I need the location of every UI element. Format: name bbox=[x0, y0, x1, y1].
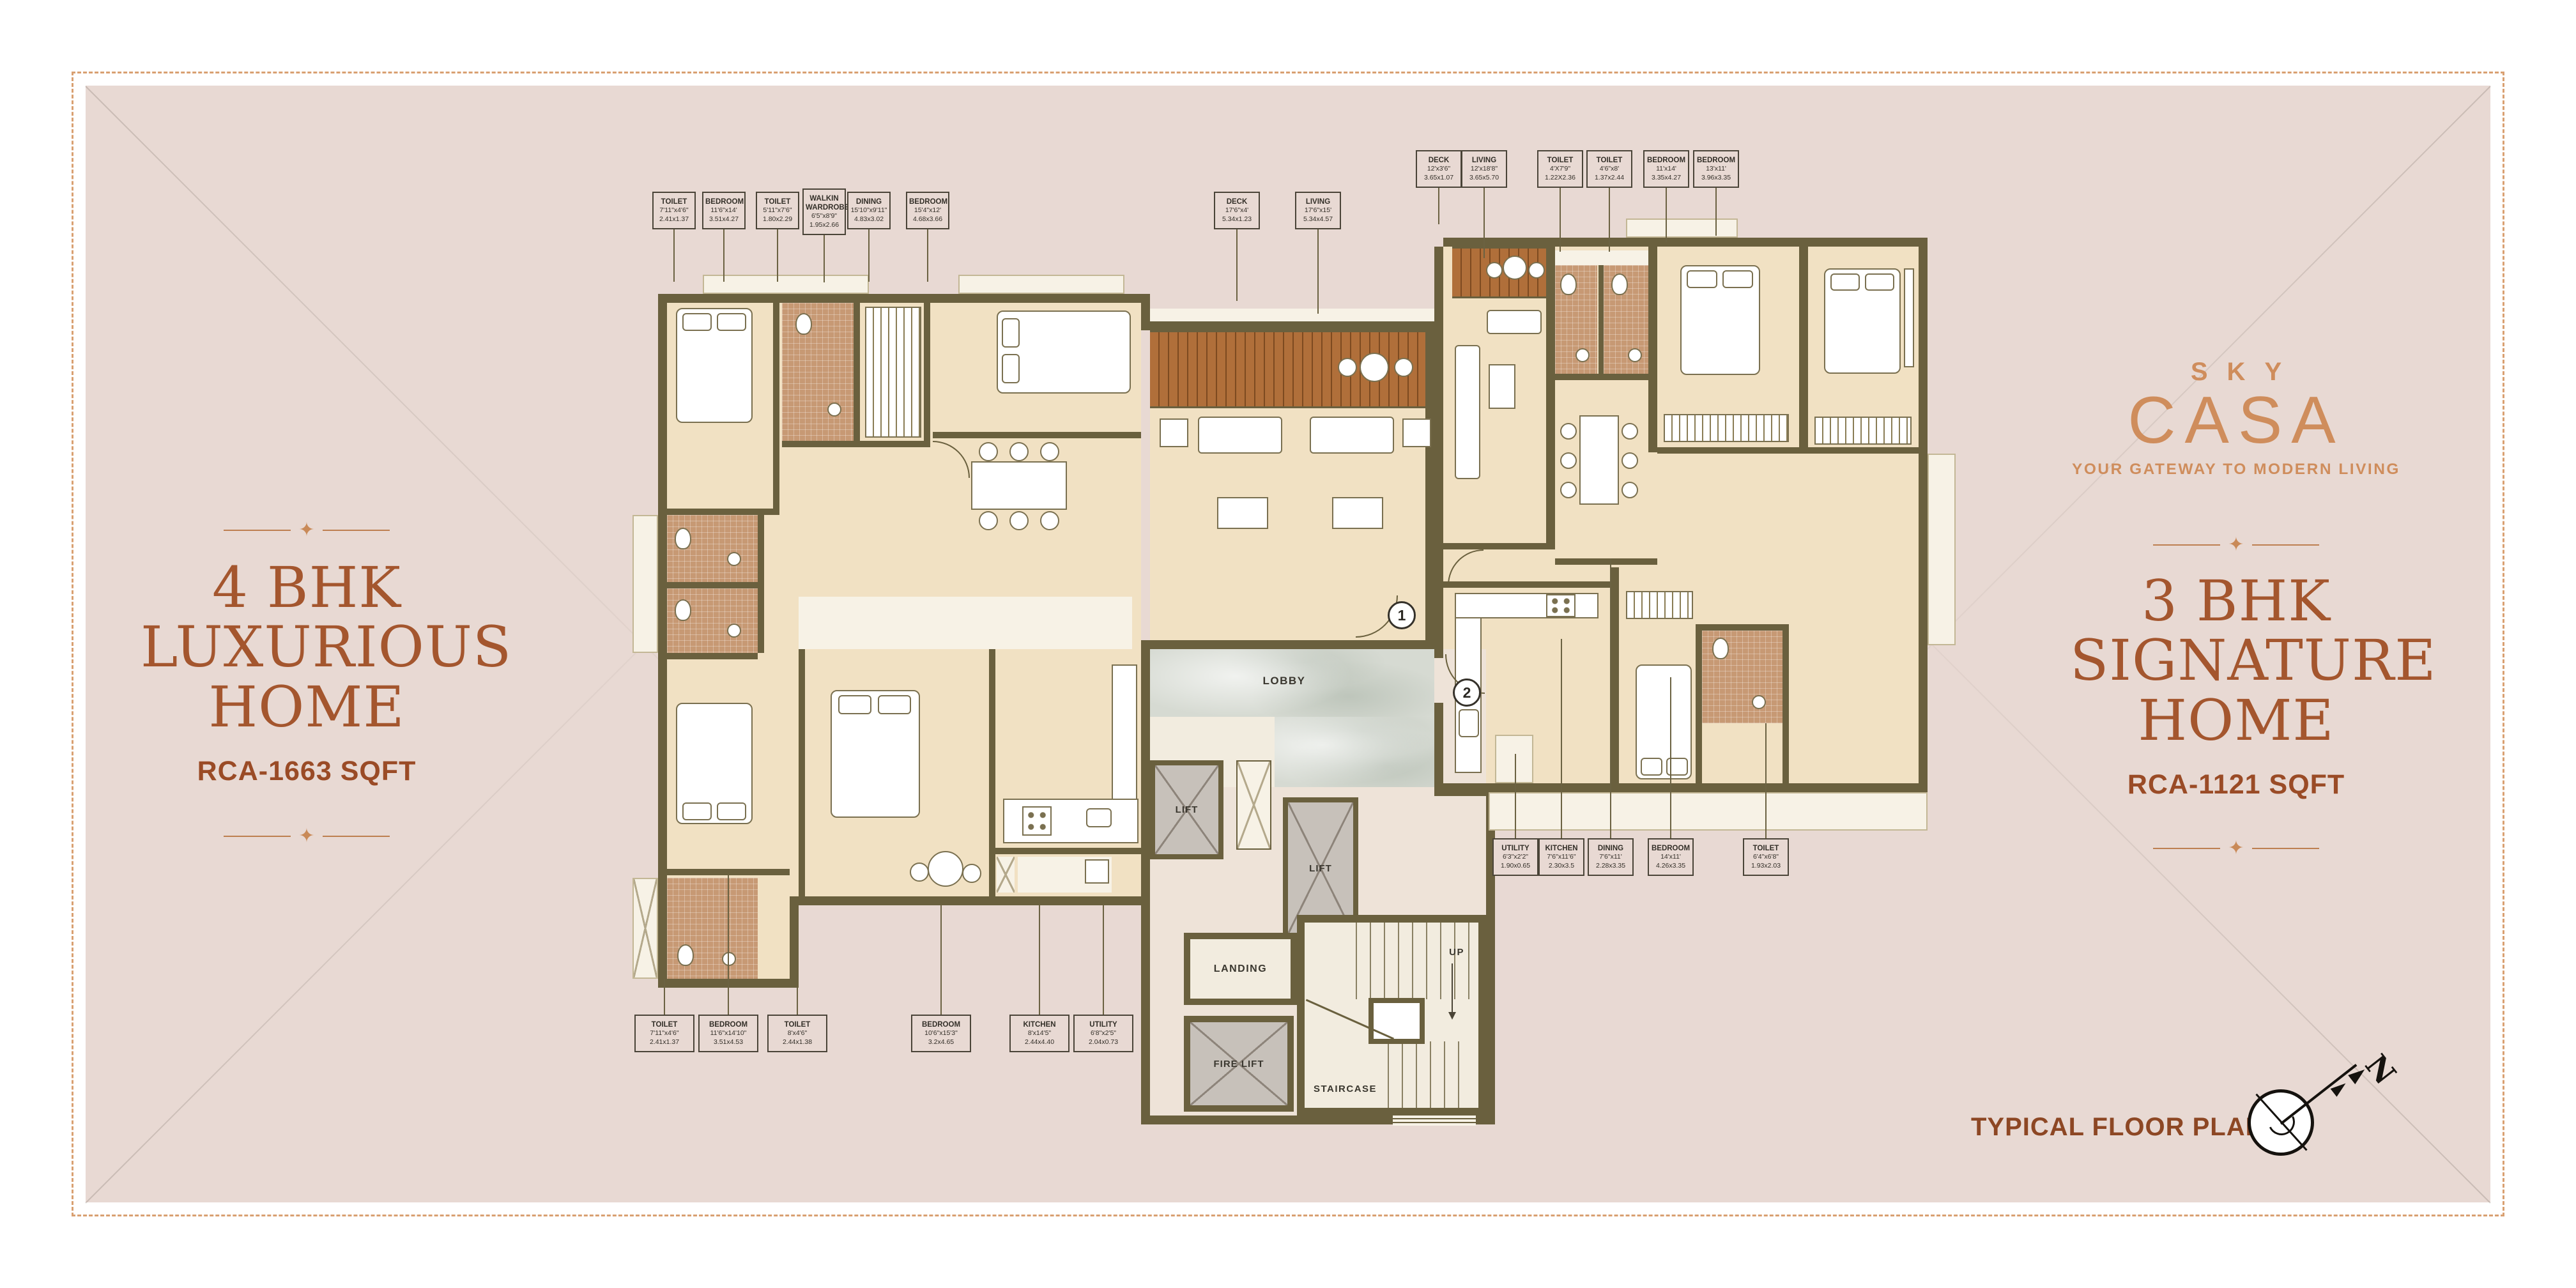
room-callout: BEDROOM11'6"x14'10"3.51x4.53 bbox=[698, 875, 758, 1052]
wall bbox=[924, 303, 930, 447]
right-unit-area: RCA-1121 SQFT bbox=[2070, 769, 2402, 801]
toilet-wc bbox=[1611, 273, 1628, 295]
divider-star-icon: ✦ bbox=[2228, 535, 2244, 555]
sofa bbox=[1455, 345, 1480, 479]
left-unit-title-block: ✦ 4 BHK LUXURIOUS HOME RCA-1663 SQFT ✦ bbox=[141, 521, 473, 846]
left-unit-area: RCA-1663 SQFT bbox=[141, 756, 473, 787]
wall bbox=[1555, 374, 1657, 380]
room-callout: UTILITY6'8"x2'5"2.04x0.73 bbox=[1073, 905, 1133, 1052]
divider-ornament: ✦ bbox=[141, 521, 473, 540]
duct bbox=[997, 857, 1015, 893]
staircase-room: UP STAIRCASE bbox=[1297, 915, 1486, 1115]
wall bbox=[1696, 624, 1789, 631]
side-ledge bbox=[632, 878, 658, 979]
walkin-wardrobe bbox=[865, 307, 921, 438]
wall bbox=[1657, 447, 1928, 454]
washing-machine bbox=[1085, 859, 1109, 884]
right-unit-title-block: ✦ 3 BHK SIGNATURE HOME RCA-1121 SQFT ✦ bbox=[2070, 535, 2402, 858]
sofa bbox=[1198, 417, 1282, 454]
kitchen-sink bbox=[1086, 808, 1112, 827]
wall bbox=[1141, 303, 1150, 330]
room-callout: LIVING17'6"x15'5.34x4.57 bbox=[1295, 192, 1341, 314]
left-unit-title-line1: 4 BHK bbox=[141, 558, 473, 617]
side-ledge bbox=[632, 515, 658, 653]
landing-room: LANDING bbox=[1184, 933, 1297, 1005]
right-unit-title-line2: SIGNATURE bbox=[2070, 631, 2402, 690]
bed bbox=[1680, 265, 1760, 375]
room-callout: BEDROOM13'x11'3.96x3.35 bbox=[1693, 150, 1739, 236]
wall bbox=[933, 432, 1141, 438]
plan-type-label: TYPICAL FLOOR PLAN bbox=[1971, 1113, 2264, 1142]
wall bbox=[989, 649, 995, 896]
room-callout: TOILET6'4"x6'8"1.93x2.03 bbox=[1743, 723, 1789, 876]
divider-ornament: ✦ bbox=[2070, 839, 2402, 858]
wall bbox=[1598, 265, 1604, 374]
wall bbox=[1648, 247, 1657, 452]
wall bbox=[667, 653, 758, 659]
dining-table bbox=[1579, 415, 1619, 505]
room-callout: TOILET4'6"x8'1.37x2.44 bbox=[1586, 150, 1632, 252]
toilet-room bbox=[782, 303, 854, 441]
lobby-floor bbox=[1275, 717, 1434, 787]
left-unit-title-line2: LUXURIOUS bbox=[141, 617, 473, 677]
wall bbox=[1141, 640, 1443, 649]
room-callout: DECK17'6"x4'5.34x1.23 bbox=[1214, 192, 1260, 301]
left-unit-corridor bbox=[799, 597, 1132, 649]
stair-well bbox=[1368, 998, 1425, 1044]
room-callout: DINING7'6"x11'2.28x3.35 bbox=[1588, 558, 1634, 876]
wall bbox=[1141, 649, 1150, 1124]
dresser bbox=[1904, 268, 1914, 367]
side-ledge bbox=[1928, 454, 1956, 645]
fire-lift-shaft: FIRE LIFT bbox=[1184, 1016, 1294, 1112]
toilet-basin bbox=[1575, 348, 1590, 362]
toilet-basin bbox=[727, 624, 741, 638]
coffee-table bbox=[1217, 497, 1268, 529]
room-callout: BEDROOM11'x14'3.35x4.27 bbox=[1643, 150, 1689, 242]
wall bbox=[1434, 247, 1443, 658]
bed bbox=[676, 308, 753, 423]
sofa bbox=[1310, 417, 1394, 454]
stove bbox=[1546, 594, 1575, 617]
wall bbox=[667, 509, 779, 515]
kitchen-counter bbox=[1455, 593, 1598, 618]
coffee-table bbox=[1332, 497, 1383, 529]
room-callout: TOILET4'X7'9"1.22X2.36 bbox=[1537, 150, 1583, 252]
deck-table bbox=[1360, 353, 1389, 382]
bed bbox=[676, 703, 753, 824]
room-callout: KITCHEN8'x14'5"2.44x4.40 bbox=[1009, 905, 1069, 1052]
wall bbox=[1425, 330, 1434, 649]
wardrobe bbox=[1814, 417, 1912, 445]
deck-ledge bbox=[1150, 309, 1434, 321]
side-table bbox=[1402, 418, 1431, 447]
compass-icon: N bbox=[2236, 1064, 2402, 1192]
wall bbox=[1919, 238, 1928, 792]
brochure-page: ✦ 4 BHK LUXURIOUS HOME RCA-1663 SQFT ✦ S… bbox=[0, 0, 2576, 1288]
wall bbox=[1434, 703, 1443, 792]
brand-casa: CASA bbox=[2070, 387, 2402, 454]
dining-table bbox=[971, 461, 1067, 510]
room-callout: WALKIN WARDROBE6'5"x8'9"1.95x2.66 bbox=[802, 188, 846, 282]
toilet-wc bbox=[795, 313, 812, 335]
wall bbox=[790, 896, 799, 988]
wall bbox=[1150, 321, 1443, 330]
wall bbox=[799, 649, 805, 896]
room-callout: BEDROOM15'4"x12'4.68x3.66 bbox=[906, 192, 949, 282]
toilet-basin bbox=[1628, 348, 1642, 362]
room-callout: UTILITY6'3"x2'2"1.90x0.65 bbox=[1492, 754, 1538, 876]
wall bbox=[773, 303, 779, 511]
toilet-wc bbox=[675, 528, 691, 549]
divider-star-icon: ✦ bbox=[298, 521, 314, 540]
fire-lift-label: FIRE LIFT bbox=[1214, 1059, 1264, 1069]
unit-2-marker: 2 bbox=[1453, 678, 1481, 707]
room-callout: BEDROOM11'6"x14'3.51x4.27 bbox=[702, 192, 746, 282]
duct bbox=[1236, 760, 1271, 850]
bed bbox=[1824, 268, 1901, 374]
room-callout: TOILET5'11"x7'6"1.80x2.29 bbox=[756, 192, 799, 282]
deck-table bbox=[1503, 256, 1527, 280]
lift-label: LIFT bbox=[1176, 804, 1199, 815]
wardrobe bbox=[1626, 591, 1693, 619]
room-callout: TOILET7'11"x4'6"2.41x1.37 bbox=[634, 979, 694, 1052]
sofa bbox=[1487, 310, 1542, 334]
coffee-table bbox=[1489, 364, 1515, 409]
right-unit-title-line1: 3 BHK bbox=[2070, 571, 2402, 631]
wall bbox=[658, 294, 667, 988]
brand-tagline: YOUR GATEWAY TO MODERN LIVING bbox=[2070, 461, 2402, 479]
toilet-wc bbox=[675, 599, 691, 621]
wall bbox=[667, 869, 790, 875]
lobby-label: LOBBY bbox=[1263, 675, 1306, 687]
room-callout: BEDROOM14'x11'4.26x3.35 bbox=[1648, 677, 1694, 876]
left-unit-title-line3: HOME bbox=[141, 677, 473, 737]
divider-star-icon: ✦ bbox=[298, 827, 314, 846]
divider-ornament: ✦ bbox=[141, 827, 473, 846]
unit-1-marker: 1 bbox=[1388, 601, 1416, 629]
toilet-basin bbox=[727, 552, 741, 566]
right-unit-title-line3: HOME bbox=[2070, 691, 2402, 750]
room-callout: KITCHEN7'6"x11'6"2.30x3.5 bbox=[1538, 639, 1584, 876]
wall bbox=[758, 515, 764, 653]
side-table bbox=[1160, 418, 1188, 447]
divider-star-icon: ✦ bbox=[2228, 839, 2244, 858]
room-callout: LIVING12'x18'8"3.65x5.70 bbox=[1461, 150, 1507, 258]
top-ledge bbox=[958, 275, 1124, 294]
wall bbox=[667, 582, 758, 588]
divider-ornament: ✦ bbox=[2070, 535, 2402, 555]
toilet-wc bbox=[1560, 273, 1577, 295]
landing-label: LANDING bbox=[1214, 963, 1267, 975]
right-duct-strip bbox=[1555, 250, 1657, 265]
lift-shaft: LIFT bbox=[1150, 760, 1223, 859]
toilet-wc bbox=[677, 944, 694, 966]
toilet-basin bbox=[827, 402, 841, 417]
bed bbox=[831, 690, 920, 818]
room-callout: TOILET8'x4'6"2.44x1.38 bbox=[767, 988, 827, 1052]
wall bbox=[1443, 543, 1555, 549]
room-callout: DINING15'10"x9'11"4.83x3.02 bbox=[847, 192, 891, 282]
wall bbox=[782, 441, 924, 447]
wall bbox=[658, 294, 1150, 303]
brand-block: SKY CASA YOUR GATEWAY TO MODERN LIVING bbox=[2070, 358, 2402, 479]
wardrobe bbox=[1664, 414, 1789, 442]
room-callout: BEDROOM10'6"x15'3"3.2x4.65 bbox=[911, 905, 971, 1052]
lift-label: LIFT bbox=[1309, 863, 1332, 874]
brand-sky: SKY bbox=[2070, 358, 2402, 387]
side-table bbox=[928, 851, 963, 887]
staircase-label: STAIRCASE bbox=[1311, 1082, 1379, 1096]
wall bbox=[1799, 247, 1808, 452]
toilet-wc bbox=[1712, 638, 1729, 659]
room-callout: DECK12'x3'6"3.65x1.07 bbox=[1416, 150, 1462, 224]
up-label: UP bbox=[1449, 947, 1464, 958]
wall bbox=[799, 896, 1150, 905]
wall bbox=[1696, 624, 1702, 788]
wall bbox=[854, 303, 860, 441]
bed bbox=[997, 310, 1131, 394]
entry-steps bbox=[1393, 1115, 1476, 1126]
toilet-basin bbox=[1752, 695, 1766, 709]
wall bbox=[994, 848, 1141, 854]
wall bbox=[1546, 247, 1555, 543]
stove bbox=[1022, 806, 1052, 836]
room-callout: TOILET7'11"x4'6"2.41x1.37 bbox=[652, 192, 696, 282]
up-arrow-icon bbox=[1452, 963, 1453, 1013]
kitchen-sink bbox=[1459, 709, 1479, 737]
